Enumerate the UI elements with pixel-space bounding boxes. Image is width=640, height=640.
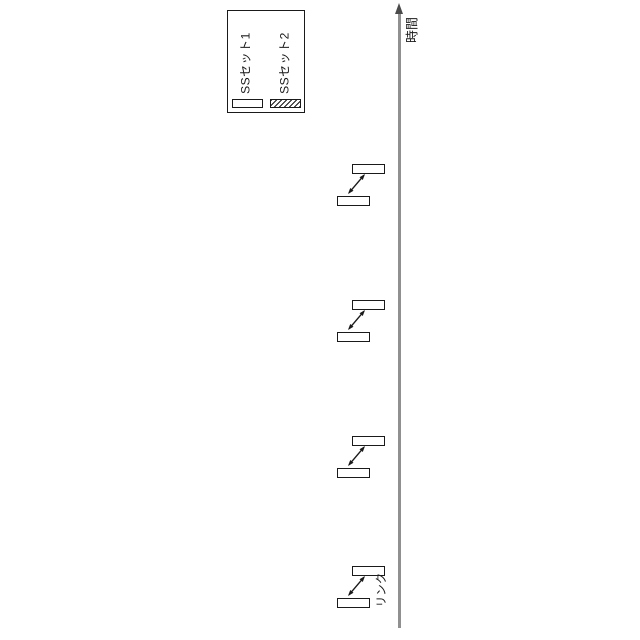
- time-axis-label: 時間: [402, 17, 421, 43]
- legend-label-ss-set1: SSセット1: [237, 32, 254, 94]
- legend-swatch-ss-set1: [232, 99, 263, 108]
- ss-set1-block: [337, 468, 370, 478]
- exchange-arrow-icon: [344, 308, 370, 333]
- legend-swatch-ss-set2: [270, 99, 301, 108]
- exchange-group: [335, 164, 387, 208]
- exchange-arrow-icon: [344, 574, 370, 599]
- time-axis-line: [398, 9, 401, 628]
- exchange-arrow-icon: [344, 444, 370, 469]
- ss-set1-block: [337, 196, 370, 206]
- legend-box: SSセット1 SSセット2: [227, 10, 305, 113]
- exchange-arrow-icon: [344, 172, 370, 197]
- ss-set1-block: [337, 332, 370, 342]
- figure-canvas: SSセット1 SSセット2 時間: [0, 0, 640, 640]
- ss-set1-block: [337, 598, 370, 608]
- arrow-up-icon: [395, 3, 403, 14]
- link-label: リンク: [373, 573, 389, 608]
- legend-label-ss-set2: SSセット2: [276, 32, 293, 94]
- exchange-group: [335, 300, 387, 344]
- exchange-group: [335, 436, 387, 480]
